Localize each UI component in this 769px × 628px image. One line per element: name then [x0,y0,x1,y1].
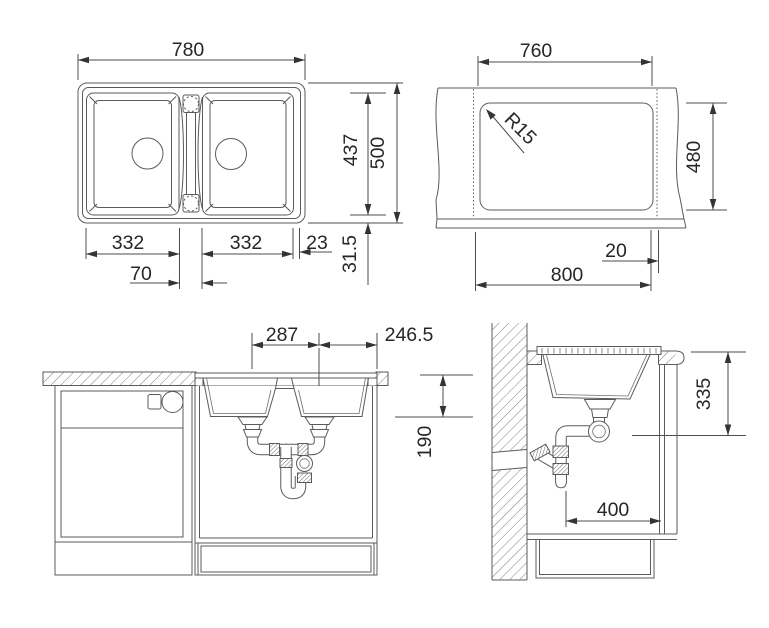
dishwasher-button [148,395,161,410]
dim-overall-width: 780 [78,39,305,80]
ball-joint [589,421,610,442]
dim-label-190: 190 [414,426,436,459]
worktop-outline [436,88,686,228]
dim-label-437: 437 [340,134,362,167]
dim-left-bowl-width: 332 [86,228,300,289]
dim-center-web: 70 [130,263,227,286]
corner-radius-callout: R15 [486,108,541,153]
cutout-view: R15 760 480 20 800 [436,40,727,291]
right-drain-hole [216,139,247,170]
dim-label-335: 335 [693,378,715,411]
dim-label-70: 70 [130,263,152,285]
sink-side-section [537,347,661,400]
top-view: 780 500 437 31.5 332 332 [78,39,403,289]
dim-label-760: 760 [520,40,553,62]
dim-label-332-left: 332 [112,232,145,254]
wall-section [492,323,527,580]
dim-label-20: 20 [605,240,627,262]
dim-edge-gap: 20 [602,230,659,291]
wall-pipe-break [493,450,527,471]
dim-cutout-width: 760 [478,40,652,86]
dim-bottom-edge: 31.5 [339,223,371,285]
left-drain-hole [132,138,163,169]
dim-label-780: 780 [172,39,205,61]
dim-label-246-5: 246.5 [385,324,434,346]
dim-right-bowl-width: 332 [202,232,293,257]
dim-right-edge: 23 [300,232,333,255]
break-line-left [436,88,439,228]
cabinet-left-dishwasher [55,386,192,576]
dim-label-31-5: 31.5 [339,235,361,273]
sink-front [195,371,377,417]
dim-drain-to-edge: 246.5 [319,324,434,348]
dim-label-332-right: 332 [230,232,263,254]
drain-fittings-front [238,417,334,437]
dim-label-480: 480 [683,141,705,174]
trap-outlet-joint [297,456,313,472]
left-bowl [87,93,180,215]
dim-label-500: 500 [367,137,389,170]
dim-cutout-depth: 480 [683,103,727,210]
dim-label-23: 23 [306,232,328,254]
sink-installation-drawing: 780 500 437 31.5 332 332 [0,0,769,628]
dishwasher-dial [162,392,183,413]
drain-plumbing-front [238,417,334,494]
right-bowl [203,93,294,215]
center-divider [179,95,203,212]
worktop-bullnose [676,351,685,365]
drain-plumbing-side [530,400,616,488]
dim-label-287: 287 [266,324,299,346]
dim-label-800: 800 [551,264,584,286]
dim-wall-clearance: 400 [566,491,661,527]
technical-drawing-page: 780 500 437 31.5 332 332 [0,0,769,628]
dim-label-400: 400 [597,499,630,521]
dim-bowl-depth: 190 [395,375,473,458]
side-view: 335 400 [492,323,746,580]
front-view: 287 246.5 190 [43,324,473,575]
dim-label-r15: R15 [500,108,541,149]
